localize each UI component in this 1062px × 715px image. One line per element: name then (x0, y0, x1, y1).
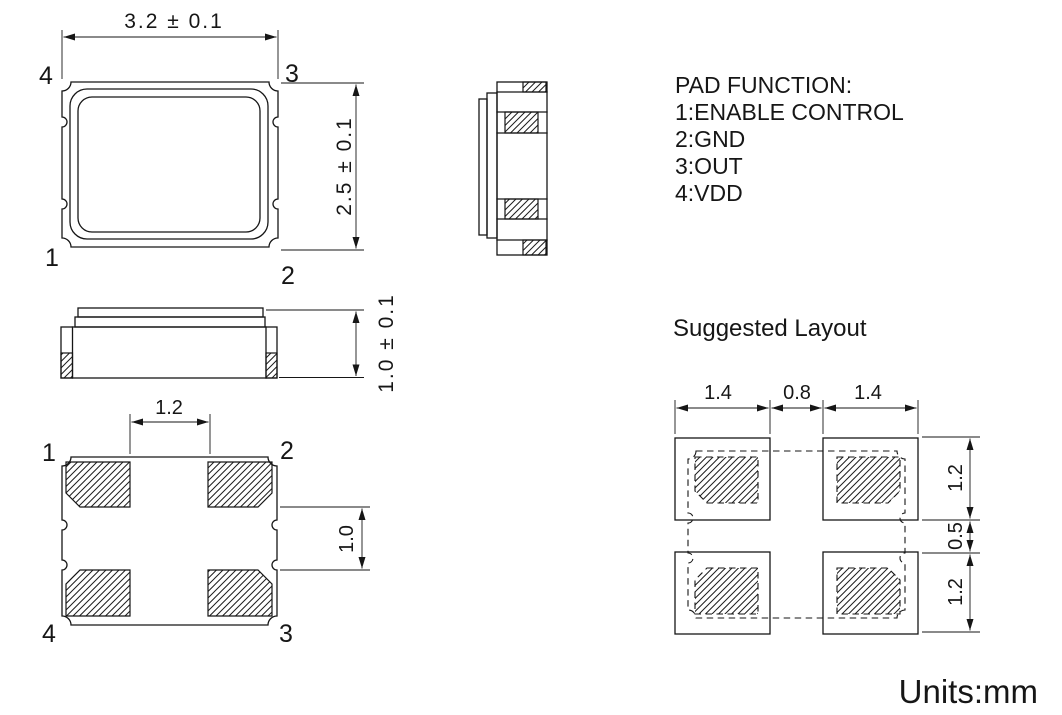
pad-function-block: PAD FUNCTION: 1:ENABLE CONTROL 2:GND 3:O… (675, 72, 904, 206)
units-label: Units:mm (899, 673, 1038, 710)
component-drawing-page: 3.2 ± 0.1 2.5 ± 0.1 4 3 1 2 (0, 0, 1062, 715)
bottom-view-pin2-label: 2 (280, 437, 294, 465)
end-view-pad-hatch (523, 82, 546, 92)
bottom-view-pin3-label: 3 (279, 620, 293, 648)
end-view-pad-hatch (523, 240, 546, 255)
layout-pad-hatch (837, 457, 900, 503)
bottom-view-pin4-label: 4 (42, 620, 56, 648)
suggested-layout-title: Suggested Layout (673, 315, 867, 342)
layout-dim-right-bottom: 1.2 (945, 578, 967, 606)
suggested-layout-drawing: Suggested Layout 1.4 0.8 1.4 1.2 0. (673, 315, 980, 634)
drawing-canvas: 3.2 ± 0.1 2.5 ± 0.1 4 3 1 2 (0, 0, 1062, 715)
layout-dim-top-left: 1.4 (704, 382, 732, 404)
end-view-body (497, 82, 547, 255)
top-view-lid-seam-inner (78, 97, 260, 232)
top-view-pin3-label: 3 (285, 60, 299, 88)
layout-dim-right-mid: 0.5 (945, 522, 967, 550)
side-view-body (61, 327, 277, 378)
layout-pad-hatch (837, 568, 900, 614)
side-view-height-label: 1.0 ± 0.1 (375, 293, 398, 393)
end-view-lid-strip-inner (487, 93, 497, 238)
bottom-pad-1 (66, 462, 130, 507)
bottom-view-drawing: 1.2 1.0 1 2 4 3 (42, 397, 370, 648)
bottom-pad-2 (208, 462, 272, 507)
bottom-view-pin1-label: 1 (42, 439, 56, 467)
top-view-outline (62, 82, 278, 247)
side-view-drawing: 1.0 ± 0.1 (61, 293, 398, 393)
bottom-pad-3 (208, 570, 272, 616)
side-view-lid-mid (75, 317, 265, 327)
bottom-view-gap-x-label: 1.2 (155, 397, 183, 419)
pad-function-item-2: 2:GND (675, 126, 745, 152)
top-view-lid-seam-outer (70, 89, 268, 239)
top-view-width-label: 3.2 ± 0.1 (124, 10, 224, 33)
side-view-pad-hatch (61, 353, 73, 378)
pad-function-title: PAD FUNCTION: (675, 72, 852, 98)
layout-dim-top-right: 1.4 (854, 382, 882, 404)
top-view-pin1-label: 1 (45, 244, 59, 272)
top-view-pin2-label: 2 (281, 262, 295, 290)
side-view-lid-top (78, 308, 263, 317)
top-view-drawing: 3.2 ± 0.1 2.5 ± 0.1 4 3 1 2 (39, 10, 364, 290)
end-view-lid-strip-outer (479, 99, 487, 235)
layout-dim-right-top: 1.2 (945, 464, 967, 492)
layout-dim-top-mid: 0.8 (783, 382, 811, 404)
layout-pad-hatch (695, 568, 758, 614)
bottom-pad-4 (66, 570, 130, 616)
layout-pad-hatch (695, 457, 758, 503)
pad-function-item-3: 3:OUT (675, 153, 743, 179)
end-view-pad-hatch (505, 199, 538, 219)
end-view-drawing (479, 82, 547, 255)
top-view-height-label: 2.5 ± 0.1 (333, 116, 356, 216)
pad-function-item-1: 1:ENABLE CONTROL (675, 99, 904, 125)
pad-function-item-4: 4:VDD (675, 180, 743, 206)
bottom-view-gap-y-label: 1.0 (336, 525, 358, 553)
side-view-pad-hatch (266, 353, 277, 378)
end-view-pad-hatch (505, 112, 538, 133)
top-view-pin4-label: 4 (39, 62, 53, 90)
